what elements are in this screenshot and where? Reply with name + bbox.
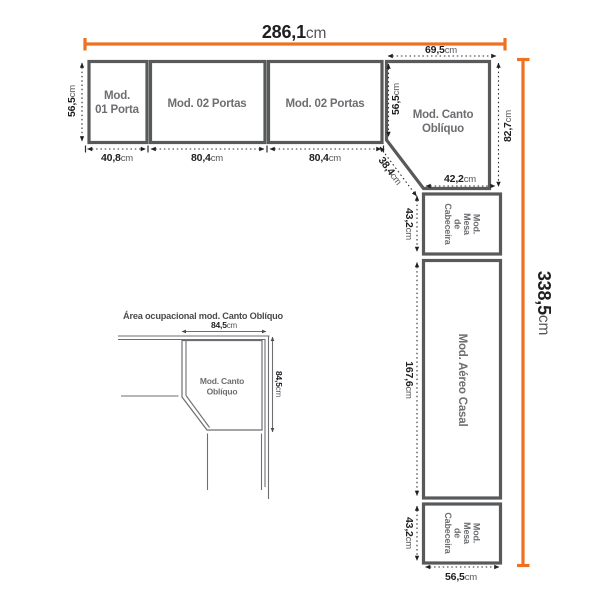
svg-text:Mod. Aéreo Casal: Mod. Aéreo Casal — [456, 334, 468, 427]
module-02-portas-b-label: Mod. 02 Portas — [286, 98, 365, 110]
dim-label-aereo-height: 167,6cm — [403, 361, 415, 399]
svg-text:Mod.: Mod. — [472, 214, 482, 234]
module-02-portas-a-label: Mod. 02 Portas — [168, 98, 247, 110]
inset-occupied-area: Área ocupacional mod. Canto Oblíquo 84,5… — [118, 310, 284, 499]
overall-height-dimension: 338,5cm — [517, 60, 554, 566]
dim-label-corner-left: 56,5cm — [390, 83, 402, 115]
svg-text:Mod.: Mod. — [472, 523, 482, 543]
dim-label-corner-bottom: 42,2cm — [444, 173, 476, 185]
module-canto-label-line2: Oblíquo — [422, 123, 464, 135]
overall-width-label: 286,1cm — [262, 22, 326, 42]
dim-label-m2-width: 80,4cm — [191, 152, 223, 164]
dim-label-mesa-top-height: 43,2cm — [403, 208, 415, 240]
svg-text:Cabeceira: Cabeceira — [443, 203, 453, 245]
furniture-dimension-diagram: 286,1cm 338,5cm Mod. 01 Porta Mod. 02 Po… — [0, 0, 600, 600]
svg-text:Cabeceira: Cabeceira — [443, 512, 453, 554]
module-canto-label-line1: Mod. Canto — [413, 109, 474, 121]
inset-top-dim-label: 84,5cm — [211, 320, 238, 330]
dim-label-corner-right: 82,7cm — [502, 110, 514, 142]
dim-label-corner-top: 69,5cm — [425, 44, 457, 56]
module-01-porta-label-line2: 01 Porta — [95, 104, 140, 116]
svg-text:Mesa: Mesa — [462, 522, 472, 545]
inset-corner-label-line1: Mod. Canto — [200, 376, 244, 386]
module-aereo-casal-label: Mod. Aéreo Casal — [456, 334, 468, 427]
dim-label-m3-width: 80,4cm — [309, 152, 341, 164]
module-01-porta-box — [89, 62, 147, 143]
inset-right-dim-label: 84,5cm — [274, 371, 284, 398]
dim-label-column-width: 56,5cm — [445, 571, 477, 583]
svg-text:de: de — [453, 219, 463, 229]
inset-corner-label-line2: Oblíquo — [207, 387, 238, 397]
dim-label-row-height: 56,5cm — [66, 85, 78, 117]
svg-text:de: de — [453, 528, 463, 538]
dim-label-m1-width: 40,8cm — [101, 152, 133, 164]
overall-height-label: 338,5cm — [534, 271, 554, 335]
module-01-porta-label-line1: Mod. — [104, 90, 130, 102]
inset-title: Área ocupacional mod. Canto Oblíquo — [123, 310, 284, 321]
dim-label-mesa-bottom-height: 43,2cm — [403, 517, 415, 549]
svg-text:Mesa: Mesa — [462, 213, 472, 236]
